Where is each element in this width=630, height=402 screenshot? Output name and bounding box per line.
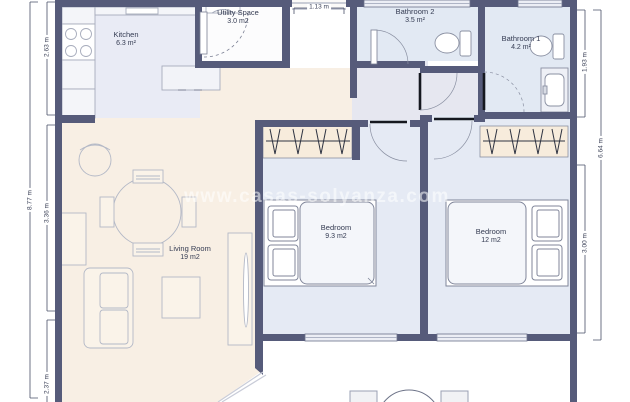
dimension-left-total: 8.77 m: [27, 188, 34, 212]
dimension-left-middle: 3.36 m: [44, 201, 51, 225]
wall-right: [570, 0, 577, 402]
dining-chair: [100, 197, 114, 227]
bed2-mattress: [448, 202, 526, 284]
dimension-right-bottom: 3.00 m: [582, 231, 589, 255]
dimension-left-top: 2.63 m: [44, 35, 51, 59]
dimension-right-total: 6.64 m: [598, 136, 605, 160]
dining-chair: [133, 170, 163, 183]
terrace-chair: [350, 391, 377, 402]
terrace-furniture: [350, 390, 468, 402]
dining-chair: [182, 197, 196, 227]
fridge: [62, 89, 95, 118]
hall-floor-right: [420, 73, 485, 122]
kitchen-island: [162, 66, 220, 90]
bed1-mattress: [300, 202, 374, 284]
terrace-table: [377, 390, 441, 402]
toilet-bath2: [460, 31, 471, 56]
hall-floor: [352, 61, 428, 127]
dimension-left-bottom: 2.37 m: [44, 372, 51, 396]
floor-plan-screenshot: Kitchen 6.3 m² Utility Space 3.0 m2 Bath…: [0, 0, 630, 402]
toilet-bath1: [553, 34, 564, 59]
dimension-right-top: 1.93 m: [582, 50, 589, 74]
tv: [244, 253, 249, 327]
sink: [126, 8, 158, 14]
dining-chair: [133, 243, 163, 256]
wall-left: [55, 0, 62, 402]
door-bath2-leaf: [371, 30, 377, 64]
coffee-table: [162, 277, 200, 318]
floor-plan-canvas: [0, 0, 630, 402]
utility-floor: [202, 7, 282, 61]
door-utility-leaf: [200, 12, 207, 54]
dimension-top-entrance: 1.13 m: [307, 4, 331, 11]
sideboard: [58, 213, 86, 265]
terrace-chair: [441, 391, 468, 402]
dining-table: [113, 178, 181, 246]
